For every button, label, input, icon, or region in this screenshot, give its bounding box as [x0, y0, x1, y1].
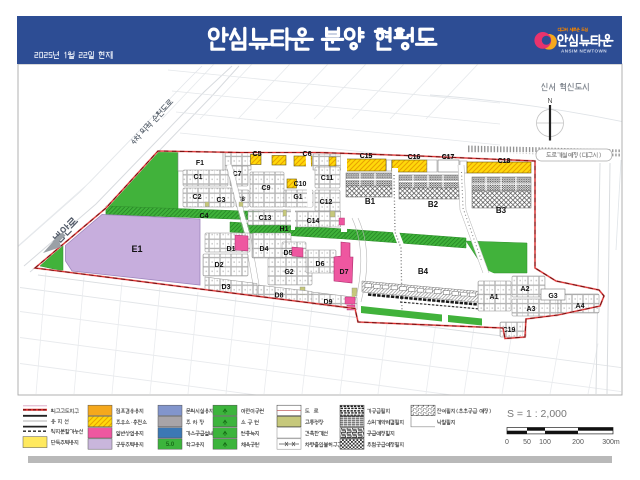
svg-text:C12: C12 [320, 199, 333, 206]
svg-text:C11: C11 [321, 175, 334, 182]
svg-text:C15: C15 [360, 153, 373, 160]
svg-text:A3: A3 [527, 306, 536, 313]
svg-text:C16: C16 [408, 154, 421, 161]
svg-text:C18: C18 [498, 158, 511, 165]
svg-text:D7: D7 [340, 269, 349, 276]
svg-text:D1: D1 [227, 246, 236, 253]
svg-text:C9: C9 [262, 185, 271, 192]
svg-text:C1: C1 [194, 174, 203, 181]
svg-text:C5: C5 [253, 151, 262, 158]
svg-text:B2: B2 [428, 200, 439, 209]
svg-text:0: 0 [505, 439, 509, 446]
svg-text:C17: C17 [442, 154, 455, 161]
svg-text:C14: C14 [307, 218, 320, 225]
svg-text:D2: D2 [215, 262, 224, 269]
svg-text:D6: D6 [316, 261, 325, 268]
svg-text:B1: B1 [365, 197, 376, 206]
svg-text:D4: D4 [260, 246, 269, 253]
svg-text:C3: C3 [217, 197, 226, 204]
svg-text:D3: D3 [222, 284, 231, 291]
svg-text:N: N [547, 98, 552, 105]
svg-text:300m: 300m [602, 439, 620, 446]
svg-text:50: 50 [523, 439, 531, 446]
svg-text:C4: C4 [200, 213, 209, 220]
svg-text:C2: C2 [193, 194, 202, 201]
svg-text:H1: H1 [280, 226, 289, 233]
svg-text:G3: G3 [548, 293, 557, 300]
svg-text:G2: G2 [284, 269, 293, 276]
svg-text:ANSIM NEWTOWN: ANSIM NEWTOWN [561, 49, 607, 54]
svg-text:B4: B4 [418, 267, 429, 276]
svg-text:5.0: 5.0 [166, 442, 175, 448]
svg-text:F1: F1 [196, 160, 204, 167]
svg-text:C6: C6 [303, 151, 312, 158]
svg-text:C13: C13 [259, 215, 272, 222]
svg-text:A2: A2 [521, 286, 530, 293]
svg-text:G1: G1 [293, 194, 302, 201]
svg-text:200: 200 [572, 439, 584, 446]
svg-text:A1: A1 [490, 294, 499, 301]
svg-text:E1: E1 [131, 244, 142, 254]
svg-text:D5: D5 [284, 250, 293, 257]
svg-text:S = 1 : 2,000: S = 1 : 2,000 [507, 408, 567, 420]
svg-text:100: 100 [539, 439, 551, 446]
svg-text:B3: B3 [496, 206, 507, 215]
svg-text:C10: C10 [294, 181, 307, 188]
